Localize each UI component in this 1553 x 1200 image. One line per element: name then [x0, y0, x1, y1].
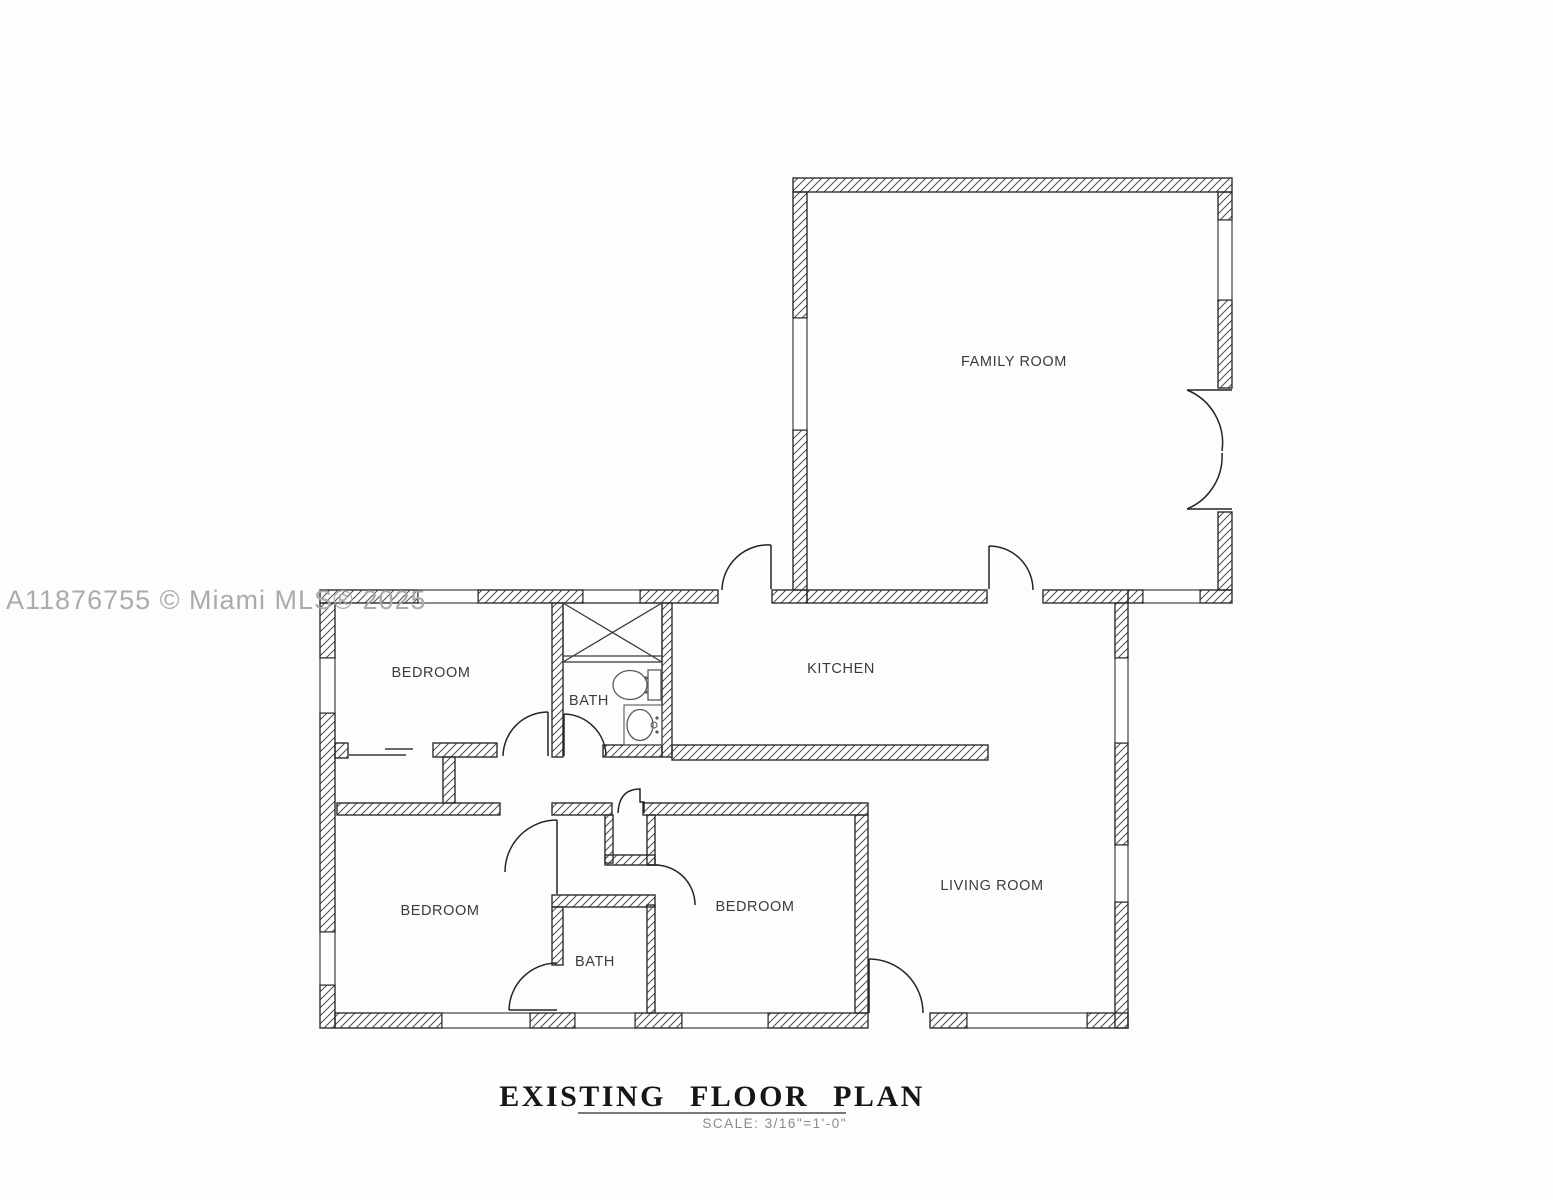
wall-hall-lower-a: [337, 803, 500, 815]
wall-bedroom-mid-top: [643, 803, 868, 815]
room-label-bath-top: BATH: [569, 693, 609, 709]
wall-right-b: [1115, 743, 1128, 845]
wall-bath2-left: [552, 907, 563, 965]
wall-bottom-a: [335, 1013, 442, 1028]
wall-kitchen-top: [807, 590, 987, 603]
wall-family-bottom-b: [1043, 590, 1128, 603]
room-label-bedroom-bottom-middle: BEDROOM: [715, 899, 794, 915]
room-label-bedroom-bottom-left: BEDROOM: [400, 903, 479, 919]
wall-bath1-right: [662, 603, 672, 757]
family-room-door-arc: [989, 546, 1033, 590]
mls-watermark: A11876755 © Miami MLS® 2025: [6, 585, 427, 615]
wall-hall-upper: [433, 743, 497, 757]
floor-plan-page: FAMILY ROOM KITCHEN BEDROOM BATH BEDROOM…: [0, 0, 1553, 1200]
room-label-bedroom-top-left: BEDROOM: [391, 665, 470, 681]
window-living-right-upper: [1115, 658, 1128, 743]
wall-closet1-stub: [335, 743, 348, 758]
wall-family-bottom-a: [1128, 590, 1143, 603]
toilet: [613, 670, 661, 700]
wall-family-right-mid: [1218, 300, 1232, 388]
floor-plan-drawing: FAMILY ROOM KITCHEN BEDROOM BATH BEDROOM…: [0, 0, 1553, 1200]
patio-door-arc-bottom: [1187, 453, 1222, 509]
bedroom1-door-arc: [503, 712, 548, 756]
wall-bath1-bottom: [603, 745, 662, 757]
wall-family-right-upper: [1218, 192, 1232, 220]
bedroom2-door-arc: [505, 820, 557, 872]
shower: [563, 603, 662, 662]
window-bedroom1-top: [418, 590, 478, 603]
wall-bath2-right: [647, 905, 655, 1013]
wall-bottom-b: [530, 1013, 575, 1028]
wall-closet1-right: [443, 757, 455, 803]
wall-closet-c: [605, 855, 655, 865]
kitchen-ext-door-arc: [722, 545, 771, 590]
wall-bedroom-mid-right: [855, 815, 868, 1013]
bath1-door-arc: [564, 714, 606, 756]
wall-right-a: [1115, 603, 1128, 658]
wall-bottom-e: [930, 1013, 967, 1028]
window-family-bottom: [1143, 590, 1200, 603]
window-living-bottom: [967, 1013, 1087, 1028]
wall-hall-lower-b: [552, 803, 612, 815]
wall-kitchen-top-corner: [772, 590, 807, 603]
room-label-family-room: FAMILY ROOM: [961, 354, 1067, 370]
window-bath1-top: [583, 590, 640, 603]
room-label-living-room: LIVING ROOM: [940, 878, 1043, 894]
bath2-door-arc: [509, 963, 557, 1010]
wall-bath1-left: [552, 603, 563, 757]
bedroom3-door-arc: [655, 865, 695, 905]
wall-family-bottom-corner: [1200, 590, 1232, 603]
wall-left-c: [320, 985, 335, 1028]
wall-bath2-top: [552, 895, 655, 907]
window-bedroom3-bottom: [682, 1013, 768, 1028]
wall-kitchen-bottom: [672, 745, 988, 760]
title-block: EXISTING FLOOR PLAN SCALE: 3/16"=1'-0": [499, 1080, 925, 1131]
sink: [624, 705, 662, 745]
bathroom-fixtures: [563, 603, 662, 745]
room-label-kitchen: KITCHEN: [807, 661, 875, 677]
entry-door-arc: [869, 959, 923, 1013]
plan-title: EXISTING FLOOR PLAN: [499, 1080, 925, 1113]
plan-scale-note: SCALE: 3/16"=1'-0": [702, 1116, 847, 1131]
wall-top-b: [478, 590, 583, 603]
room-labels: FAMILY ROOM KITCHEN BEDROOM BATH BEDROOM…: [391, 354, 1067, 970]
window-bedroom2-bottom: [442, 1013, 530, 1028]
window-family-right: [1218, 220, 1232, 300]
closets: [349, 749, 413, 755]
wall-bottom-c: [635, 1013, 682, 1028]
wall-family-top: [793, 178, 1232, 192]
wall-right-c: [1115, 902, 1128, 1028]
window-bedroom2-left: [320, 932, 335, 985]
wall-family-left-upper: [793, 192, 807, 318]
wall-left-b: [320, 713, 335, 932]
window-family-left: [793, 318, 807, 430]
hall-closet-door: [618, 789, 644, 813]
wall-family-left-lower: [793, 430, 807, 590]
wall-family-right-lower: [1218, 512, 1232, 590]
wall-top-c: [640, 590, 718, 603]
wall-bottom-d: [768, 1013, 868, 1028]
room-label-bath-bottom: BATH: [575, 954, 615, 970]
window-living-right-lower: [1115, 845, 1128, 902]
patio-door-arc-top: [1187, 390, 1223, 451]
window-bath2-bottom: [575, 1013, 635, 1028]
window-bedroom1-left: [320, 658, 335, 713]
